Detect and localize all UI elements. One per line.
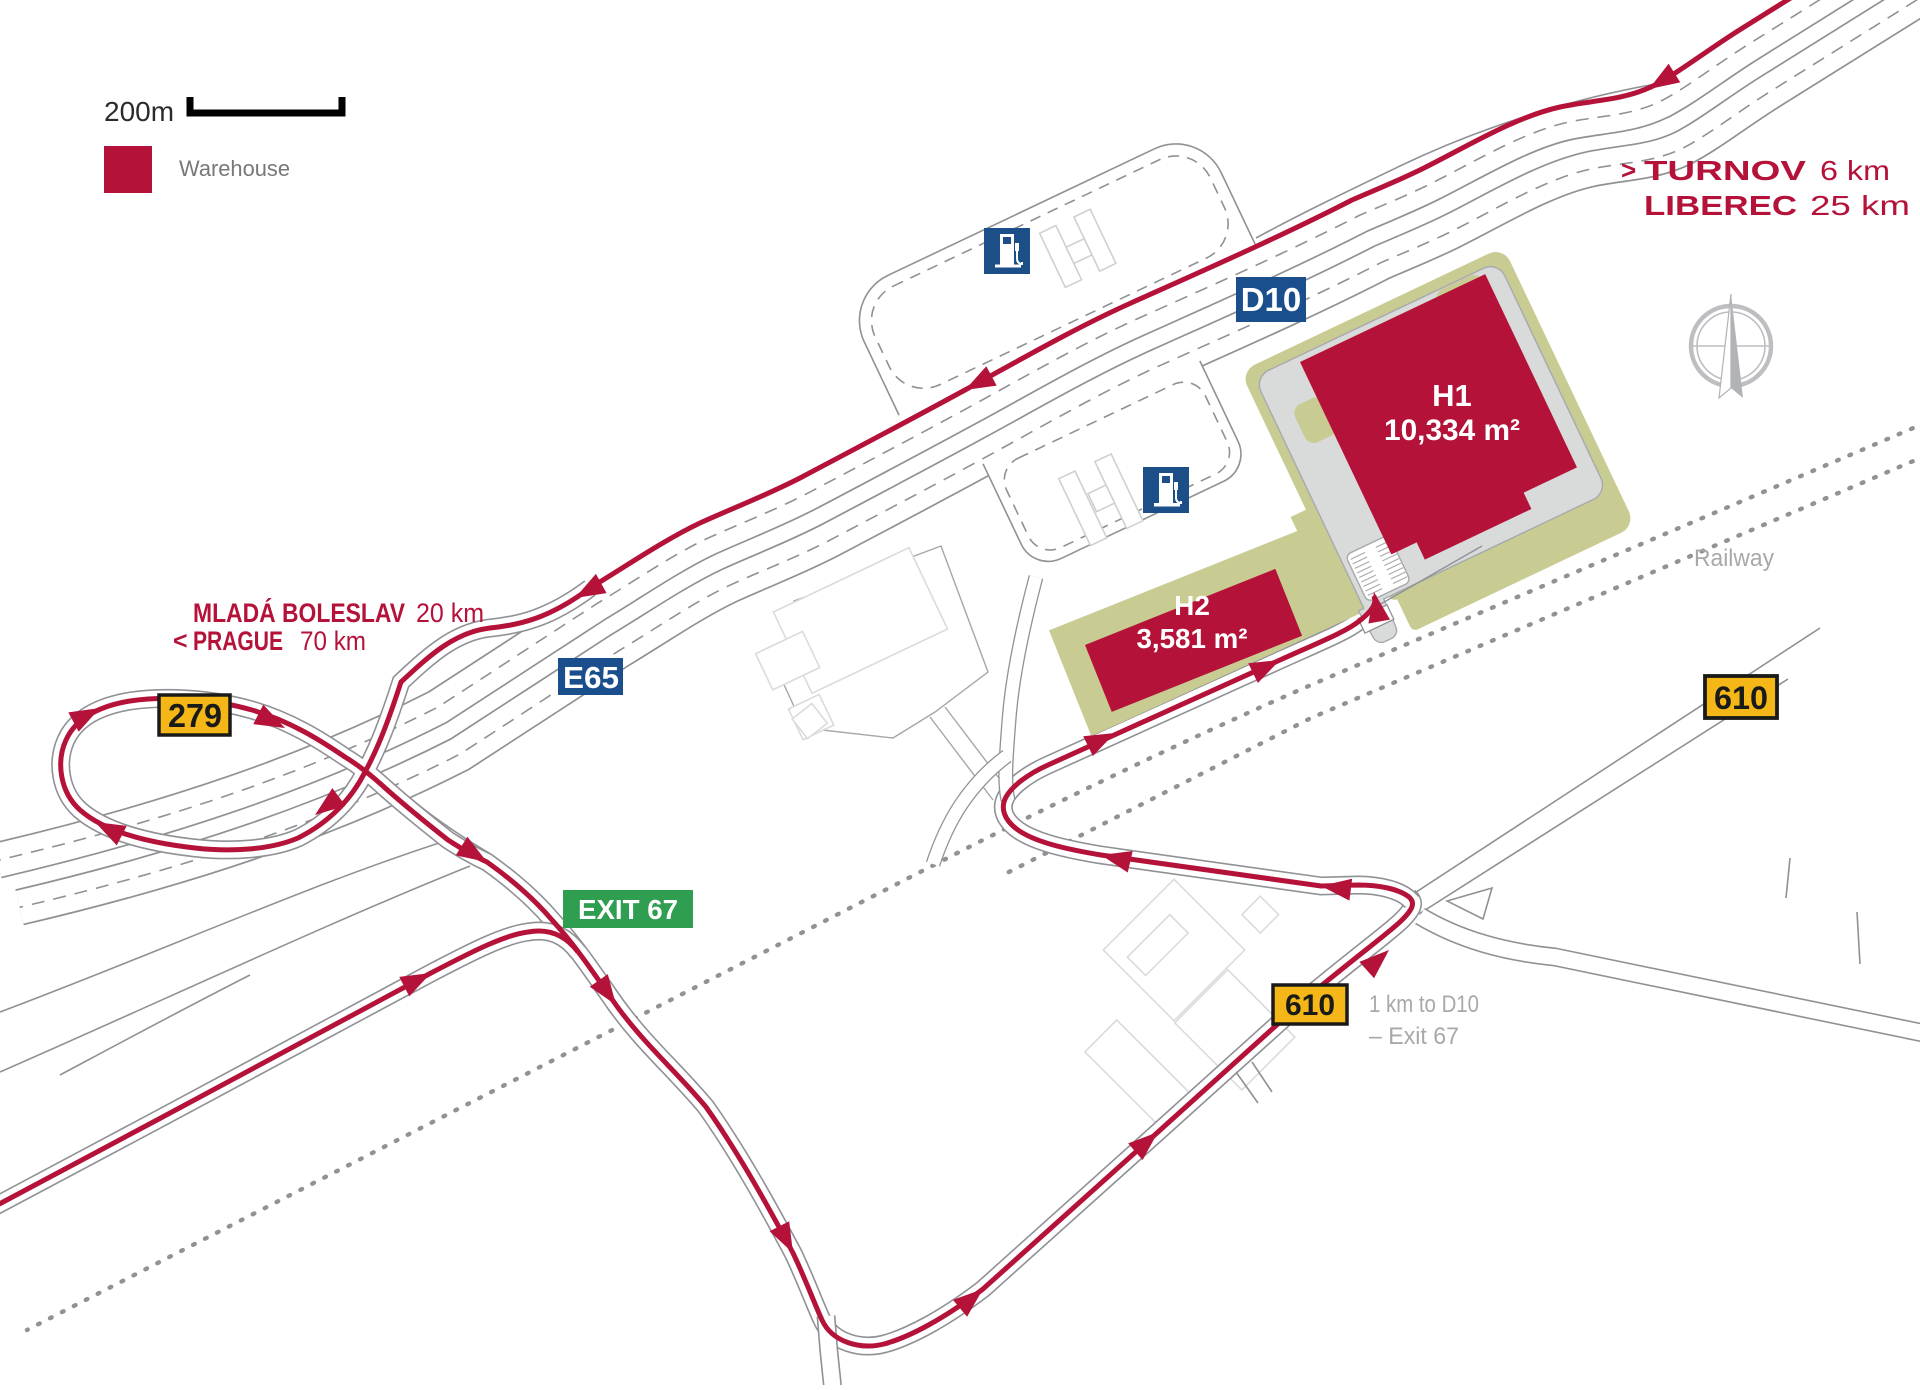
svg-text:Railway: Railway bbox=[1694, 545, 1774, 572]
svg-text:1 km to D10: 1 km to D10 bbox=[1369, 991, 1479, 1018]
svg-text:TURNOV: TURNOV bbox=[1644, 155, 1806, 186]
svg-text:10,334 m²: 10,334 m² bbox=[1384, 414, 1520, 447]
svg-text:279: 279 bbox=[168, 697, 222, 734]
svg-text:H2: H2 bbox=[1174, 590, 1210, 621]
svg-text:20 km: 20 km bbox=[416, 598, 484, 628]
svg-text:– Exit 67: – Exit 67 bbox=[1369, 1023, 1459, 1050]
svg-text:610: 610 bbox=[1285, 989, 1335, 1022]
svg-text:70 km: 70 km bbox=[300, 626, 366, 656]
svg-text:25 km: 25 km bbox=[1810, 190, 1910, 221]
svg-text:3,581 m²: 3,581 m² bbox=[1137, 623, 1248, 654]
svg-text:6 km: 6 km bbox=[1820, 155, 1890, 186]
svg-text:D10: D10 bbox=[1241, 281, 1302, 318]
svg-text:LIBEREC: LIBEREC bbox=[1644, 190, 1797, 221]
svg-text:Warehouse: Warehouse bbox=[179, 156, 290, 181]
svg-text:H1: H1 bbox=[1432, 378, 1472, 413]
svg-text:E65: E65 bbox=[563, 660, 619, 695]
svg-text:EXIT 67: EXIT 67 bbox=[578, 894, 678, 925]
svg-text:PRAGUE: PRAGUE bbox=[193, 626, 283, 656]
svg-text:610: 610 bbox=[1714, 680, 1768, 716]
svg-text:>: > bbox=[1621, 155, 1636, 185]
svg-text:<: < bbox=[173, 627, 188, 655]
svg-text:200m: 200m bbox=[104, 96, 174, 127]
svg-text:MLADÁ BOLESLAV: MLADÁ BOLESLAV bbox=[193, 597, 405, 628]
